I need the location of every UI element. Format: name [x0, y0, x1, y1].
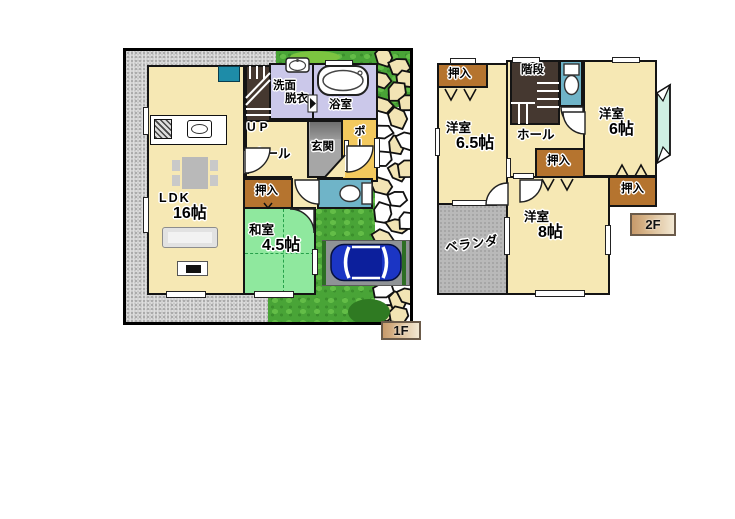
door-arcs-2f [486, 107, 585, 205]
toilet-icon [564, 64, 579, 95]
porch-door-arc [347, 146, 373, 172]
closet-door-marks [445, 89, 647, 190]
fixtures-2f [435, 55, 675, 300]
toilet-door-arc [295, 180, 319, 204]
floor-2-plan: 押入 洋室 6.5帖 階段 ホール 押入 洋室 6帖 押入 洋室 8帖 ベランダ [435, 55, 675, 300]
floor-1-tag: 1F [381, 321, 421, 340]
bay-window-icon [657, 85, 670, 163]
floor-1-plan: LDK 16帖 和室 4.5帖 洗面 脱衣 浴室 UP ホール 玄関 ポーチ 押… [123, 48, 413, 325]
car-icon [331, 245, 401, 281]
floor-2-tag: 2F [630, 213, 676, 236]
bathtub-icon [318, 66, 368, 95]
ldk-door-arc [245, 148, 270, 173]
stairs-1f-treads [246, 66, 271, 115]
closet-door-mark [264, 203, 272, 208]
stairs-2f-treads [511, 83, 559, 124]
washitsu-door-arc [290, 209, 314, 233]
bath-door-icon [308, 95, 317, 112]
toilet-icon [340, 183, 372, 204]
room65-door-arc [486, 183, 508, 205]
room6-door-arc [563, 112, 585, 134]
floorplan-canvas: LDK 16帖 和室 4.5帖 洗面 脱衣 浴室 UP ホール 玄関 ポーチ 押… [0, 0, 735, 519]
fixtures-1f [126, 51, 410, 322]
washstand-icon [286, 58, 309, 72]
room8-door-arc [520, 180, 542, 202]
